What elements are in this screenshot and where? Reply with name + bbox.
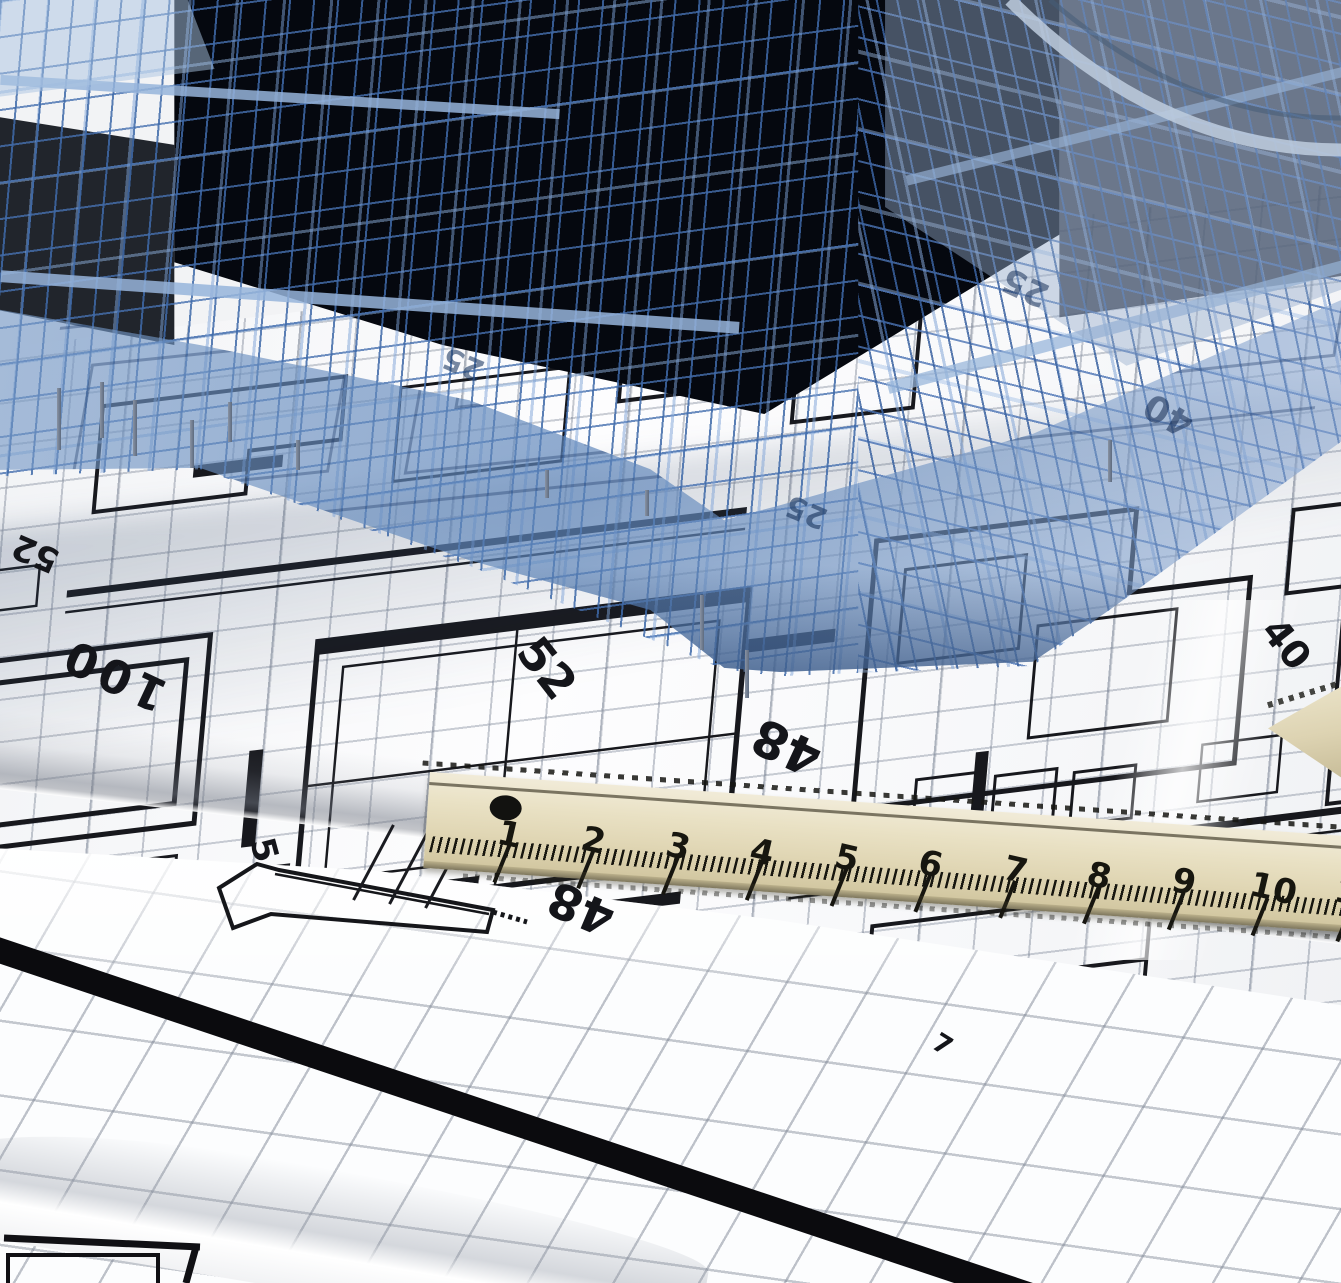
support-column	[228, 402, 232, 442]
support-column	[190, 420, 194, 468]
support-column	[296, 440, 300, 470]
curved-structure	[950, 0, 1341, 230]
support-column	[57, 388, 61, 450]
support-column	[745, 650, 749, 698]
support-column	[545, 470, 549, 498]
support-column	[700, 595, 704, 650]
support-column	[645, 490, 649, 516]
corner-plan-lines	[0, 1225, 260, 1283]
support-column	[1108, 440, 1112, 482]
support-column	[133, 400, 137, 456]
architectural-render-scene: 52 100 52 48 5 48 40 7 25 25 25 40 1 2 3…	[0, 0, 1341, 1283]
support-column	[100, 382, 104, 438]
